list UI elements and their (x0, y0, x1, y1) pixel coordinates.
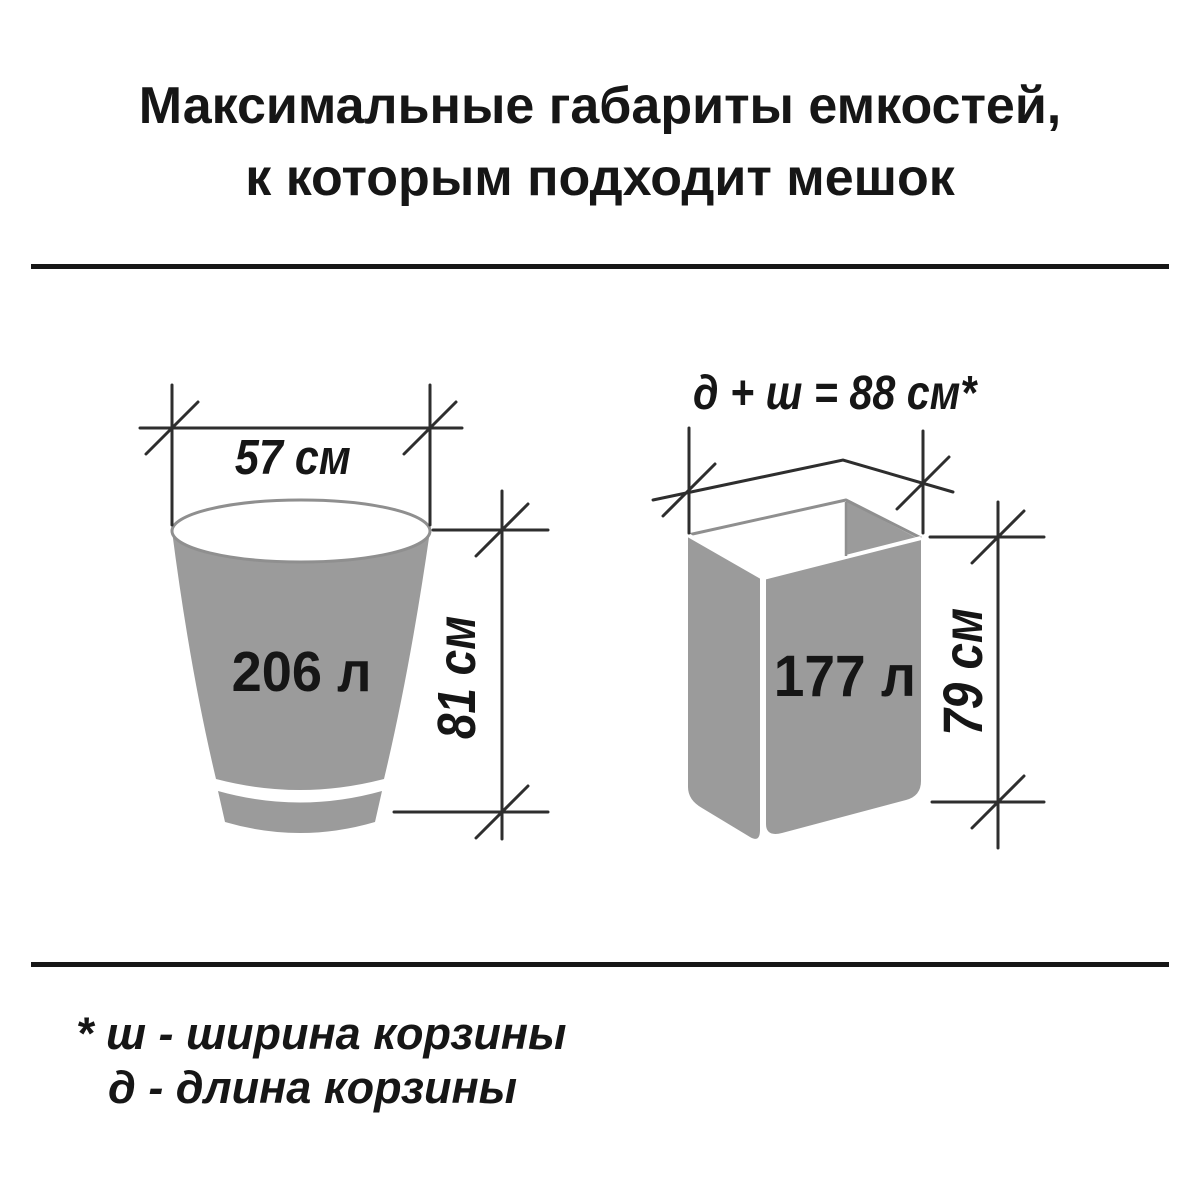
basket-formula-value: д + ш = 88 см* (693, 366, 976, 421)
bucket-rim (172, 500, 430, 562)
footnote-line-1: * ш - ширина корзины (76, 1008, 566, 1060)
bucket-volume-value: 206 л (232, 639, 372, 705)
bucket-height-label: 81 см (427, 577, 487, 777)
bucket-base (218, 791, 382, 833)
bottom-divider (31, 962, 1169, 967)
footnote-line-2: д - длина корзины (108, 1062, 517, 1114)
bucket-height-value: 81 см (426, 615, 488, 738)
basket-formula-label: д + ш = 88 см* (635, 362, 1035, 424)
basket-volume-value: 177 л (774, 643, 916, 710)
bucket-width-value: 57 см (235, 430, 351, 486)
bucket-width-label: 57 см (173, 430, 413, 486)
basket-height-value: 79 см (930, 608, 995, 736)
infographic-canvas: Максимальные габариты емкостей, к которы… (0, 0, 1200, 1200)
bucket-volume-label: 206 л (152, 636, 452, 708)
basket-height-label: 79 см (932, 572, 992, 772)
